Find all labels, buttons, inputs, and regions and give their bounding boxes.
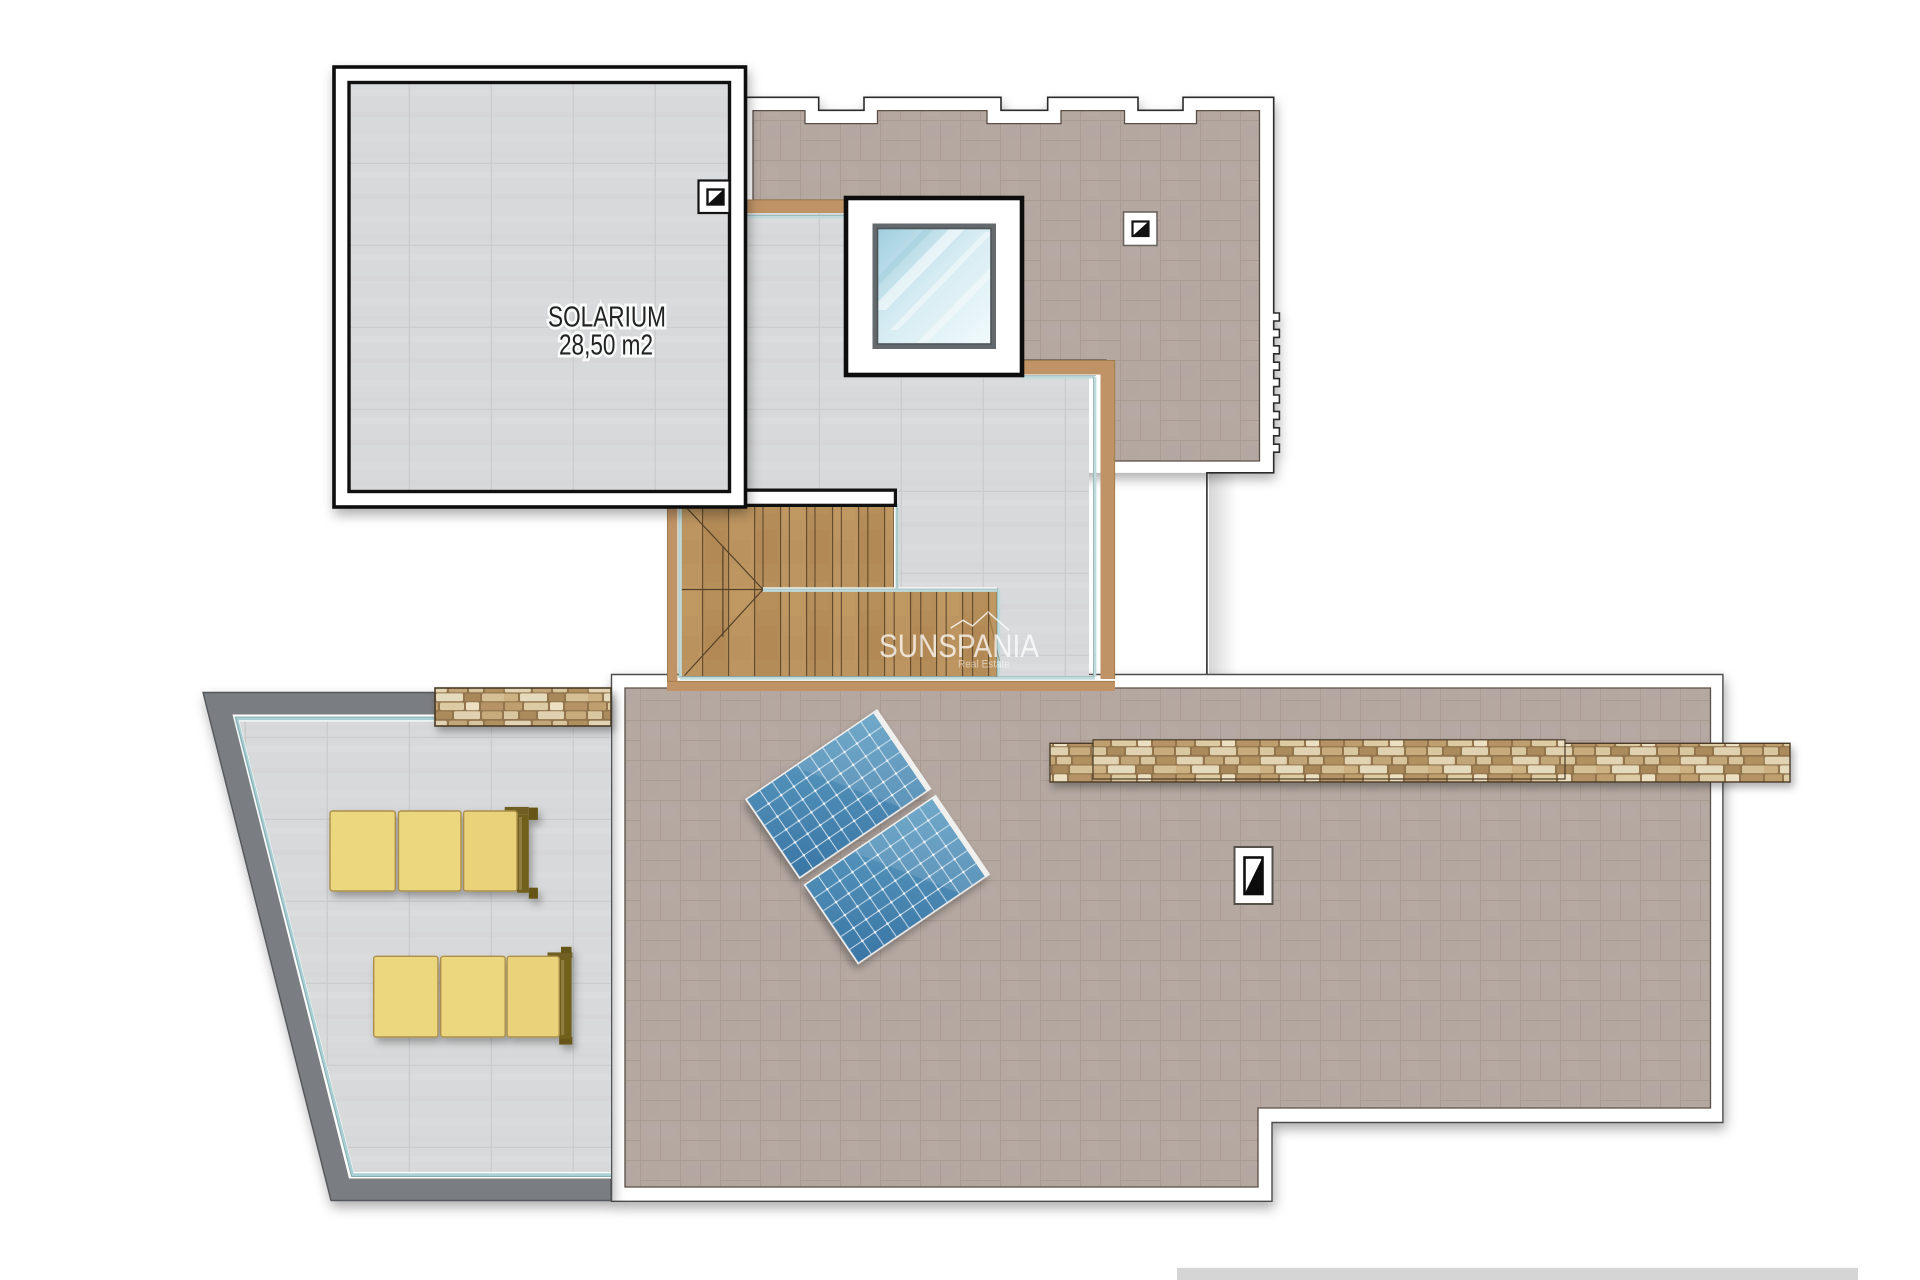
svg-text:28,50 m2: 28,50 m2: [559, 330, 653, 362]
svg-text:Real Estate: Real Estate: [958, 659, 1010, 671]
svg-text:SOLARIUM: SOLARIUM: [548, 301, 666, 333]
